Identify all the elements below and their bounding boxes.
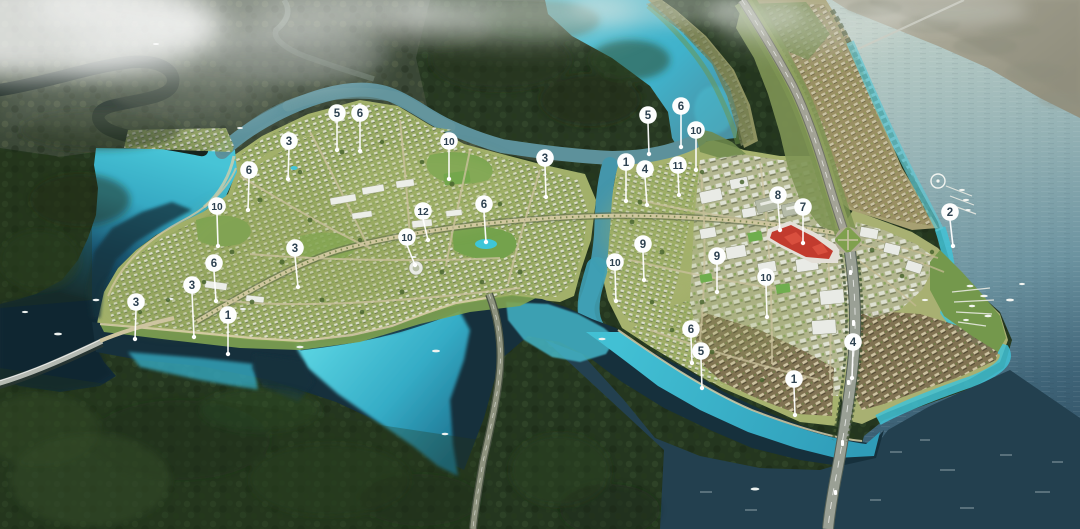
svg-text:6: 6 [211, 258, 217, 270]
svg-text:2: 2 [947, 207, 953, 219]
svg-text:5: 5 [698, 346, 705, 358]
svg-text:3: 3 [292, 243, 298, 255]
svg-text:1: 1 [791, 374, 798, 386]
svg-text:9: 9 [714, 251, 720, 263]
svg-text:6: 6 [678, 101, 684, 113]
svg-text:3: 3 [542, 153, 548, 165]
svg-text:7: 7 [800, 202, 806, 214]
svg-text:5: 5 [645, 110, 652, 122]
svg-text:10: 10 [443, 137, 455, 148]
svg-text:6: 6 [246, 165, 252, 177]
svg-text:9: 9 [640, 239, 646, 251]
svg-text:4: 4 [850, 337, 857, 349]
svg-text:3: 3 [286, 136, 292, 148]
svg-text:4: 4 [642, 164, 649, 176]
svg-text:6: 6 [688, 324, 694, 336]
svg-text:5: 5 [334, 108, 341, 120]
svg-text:10: 10 [690, 126, 702, 137]
svg-text:1: 1 [225, 310, 232, 322]
svg-text:6: 6 [481, 199, 487, 211]
svg-text:10: 10 [211, 202, 223, 213]
svg-text:6: 6 [357, 108, 363, 120]
svg-text:10: 10 [760, 273, 772, 284]
svg-text:1: 1 [623, 157, 630, 169]
svg-text:10: 10 [609, 258, 621, 269]
svg-text:3: 3 [133, 297, 139, 309]
svg-text:3: 3 [189, 280, 195, 292]
svg-text:10: 10 [401, 233, 413, 244]
svg-text:8: 8 [775, 190, 782, 202]
svg-text:11: 11 [673, 161, 684, 172]
svg-text:12: 12 [417, 207, 429, 218]
